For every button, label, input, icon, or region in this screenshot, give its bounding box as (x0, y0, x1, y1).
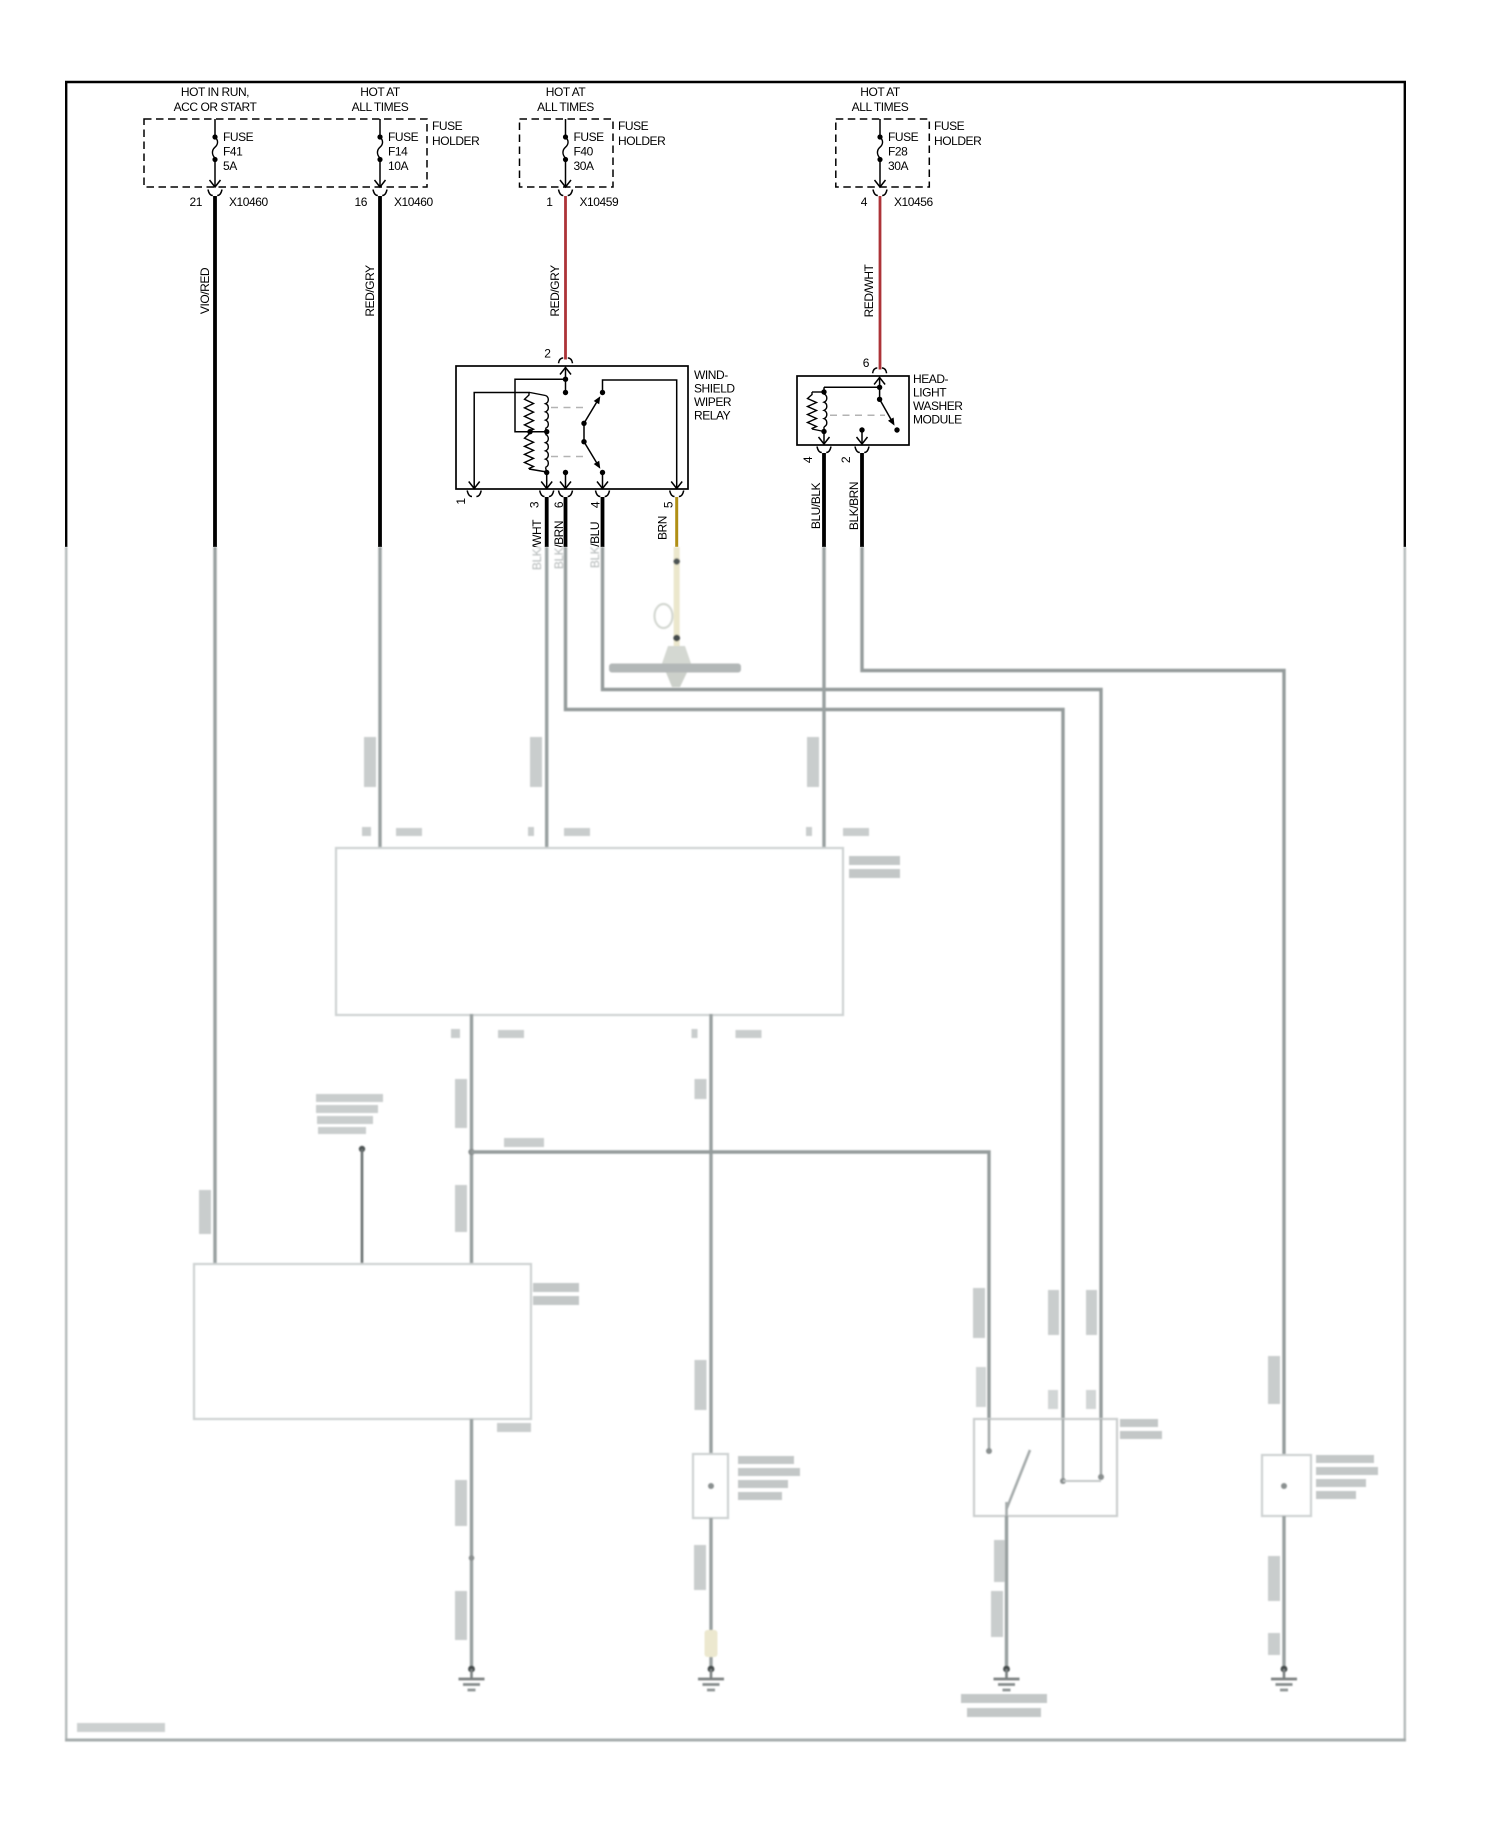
svg-text:HEAD-: HEAD- (913, 372, 949, 386)
svg-text:HOT AT: HOT AT (546, 85, 587, 99)
svg-text:FUSE: FUSE (888, 130, 919, 144)
svg-text:ALL TIMES: ALL TIMES (852, 100, 909, 114)
svg-text:1: 1 (546, 195, 553, 209)
svg-text:1: 1 (454, 498, 468, 505)
svg-text:FUSE: FUSE (574, 130, 605, 144)
svg-text:F40: F40 (574, 145, 594, 159)
svg-text:5A: 5A (223, 159, 237, 173)
svg-text:4: 4 (801, 456, 815, 463)
svg-text:X10456: X10456 (894, 195, 933, 209)
svg-text:16: 16 (355, 195, 368, 209)
svg-text:ACC OR START: ACC OR START (174, 100, 258, 114)
svg-text:2: 2 (544, 347, 551, 361)
svg-text:30A: 30A (574, 159, 594, 173)
svg-text:HOLDER: HOLDER (618, 134, 666, 148)
svg-text:21: 21 (190, 195, 203, 209)
svg-text:X10459: X10459 (580, 195, 619, 209)
svg-text:X10460: X10460 (229, 195, 268, 209)
svg-text:MODULE: MODULE (913, 413, 962, 427)
svg-text:LIGHT: LIGHT (913, 386, 947, 400)
svg-text:BLK/BRN: BLK/BRN (847, 482, 861, 530)
svg-text:ALL TIMES: ALL TIMES (537, 100, 594, 114)
svg-text:X10460: X10460 (394, 195, 433, 209)
svg-text:2: 2 (839, 456, 853, 463)
svg-text:ALL TIMES: ALL TIMES (352, 100, 409, 114)
svg-text:F41: F41 (223, 145, 243, 159)
svg-text:WIND-: WIND- (694, 368, 728, 382)
svg-text:F14: F14 (388, 145, 408, 159)
svg-text:RED/GRY: RED/GRY (548, 265, 562, 317)
svg-text:RED/GRY: RED/GRY (363, 265, 377, 317)
svg-text:5: 5 (662, 501, 676, 508)
svg-text:WIPER: WIPER (694, 395, 732, 409)
svg-text:RELAY: RELAY (694, 409, 731, 423)
svg-text:BLU/BLK: BLU/BLK (809, 482, 823, 529)
svg-text:HOLDER: HOLDER (934, 134, 982, 148)
svg-text:4: 4 (861, 195, 868, 209)
svg-text:6: 6 (863, 356, 870, 370)
svg-text:FUSE: FUSE (934, 119, 965, 133)
svg-text:HOT AT: HOT AT (860, 85, 901, 99)
svg-text:4: 4 (589, 501, 603, 508)
svg-text:VIO/RED: VIO/RED (198, 267, 212, 314)
svg-text:F28: F28 (888, 145, 908, 159)
svg-text:HOT AT: HOT AT (360, 85, 401, 99)
svg-text:HOT IN RUN,: HOT IN RUN, (181, 85, 249, 99)
svg-text:10A: 10A (388, 159, 408, 173)
svg-text:SHIELD: SHIELD (694, 382, 735, 396)
svg-text:RED/WHT: RED/WHT (862, 263, 876, 317)
svg-text:FUSE: FUSE (432, 119, 463, 133)
svg-text:30A: 30A (888, 159, 908, 173)
svg-text:FUSE: FUSE (223, 130, 254, 144)
svg-text:FUSE: FUSE (618, 119, 649, 133)
svg-text:BRN: BRN (656, 516, 670, 540)
svg-text:3: 3 (528, 501, 542, 508)
svg-text:WASHER: WASHER (913, 399, 963, 413)
svg-text:FUSE: FUSE (388, 130, 419, 144)
svg-text:HOLDER: HOLDER (432, 134, 480, 148)
